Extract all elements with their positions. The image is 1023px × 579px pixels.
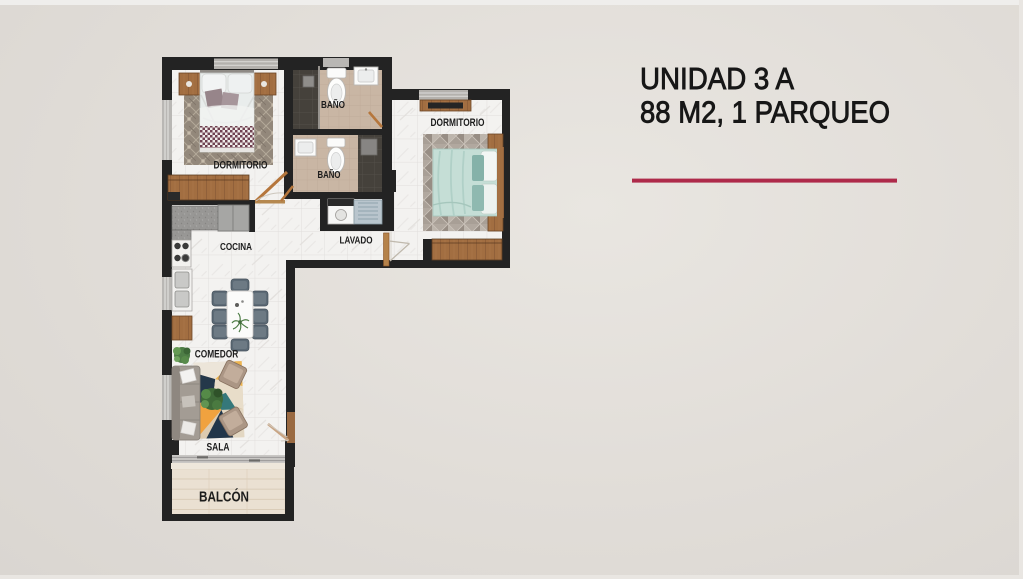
svg-text:SALA: SALA [207,442,230,454]
svg-text:DORMITORIO: DORMITORIO [431,117,485,129]
svg-text:DORMITORIO: DORMITORIO [214,160,268,172]
svg-text:BAÑO: BAÑO [321,98,345,111]
svg-text:COCINA: COCINA [220,241,252,253]
svg-text:LAVADO: LAVADO [340,235,373,247]
svg-text:BAÑO: BAÑO [318,168,341,181]
svg-text:COMEDOR: COMEDOR [195,349,239,361]
svg-text:BALCÓN: BALCÓN [199,488,249,506]
svg-text:UNIDAD 3 A: UNIDAD 3 A [640,61,794,96]
svg-text:88 M2, 1 PARQUEO: 88 M2, 1 PARQUEO [640,95,890,130]
